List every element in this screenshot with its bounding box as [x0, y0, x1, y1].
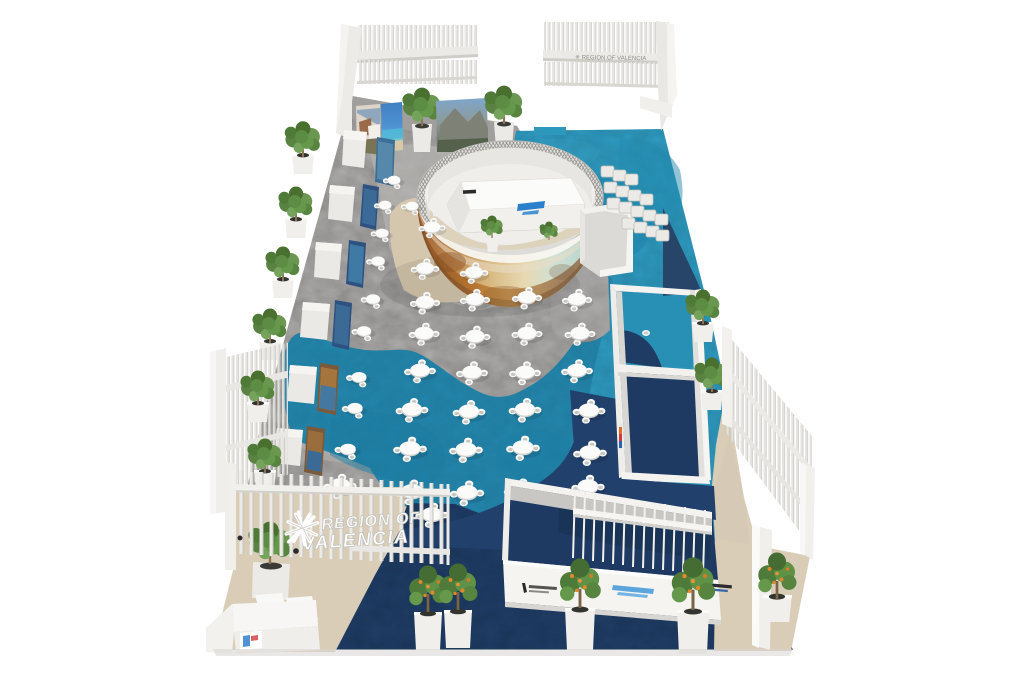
- svg-text:✳ REGION OF VALENCIA: ✳ REGION OF VALENCIA: [575, 54, 646, 62]
